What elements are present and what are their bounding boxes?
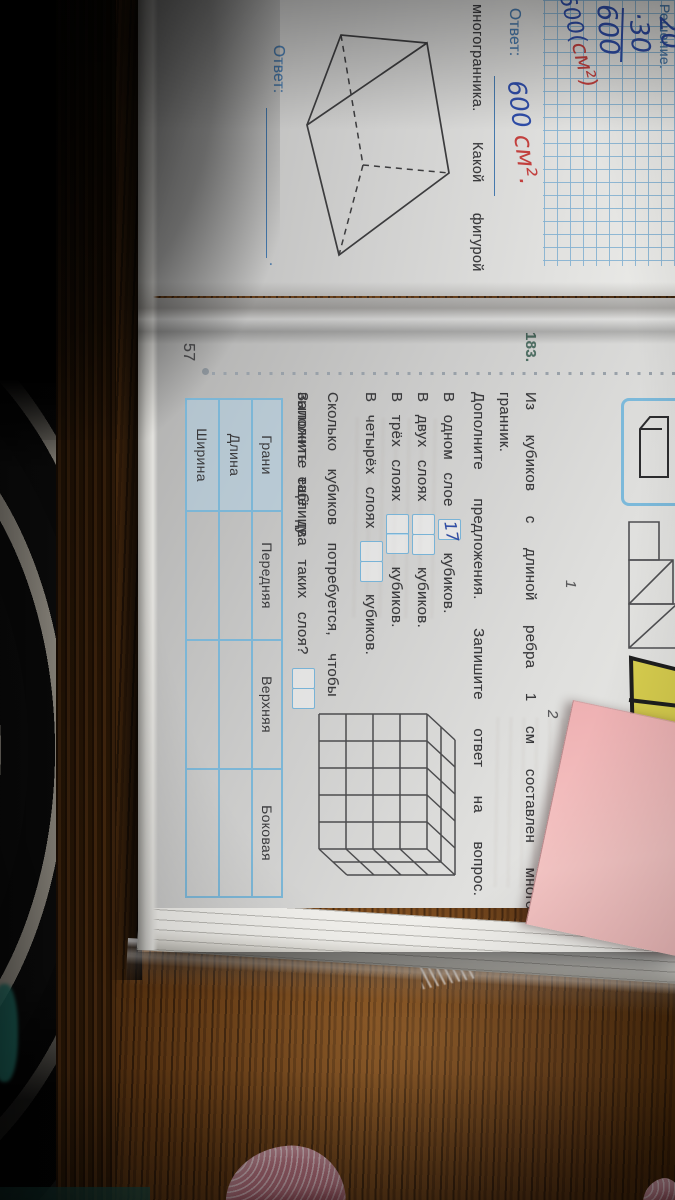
task-intro-line1: Из кубиков с длиной ребра 1 см составлен… <box>522 392 539 908</box>
book-side-shadow <box>108 0 142 980</box>
answer-underline-bottom <box>266 108 267 258</box>
answer-box-empty[interactable] <box>360 561 383 582</box>
answer-box-empty[interactable] <box>292 688 315 709</box>
page-number: 57 <box>179 343 197 361</box>
handwritten-factor-1: 20 <box>653 15 675 51</box>
answer-box-empty[interactable] <box>386 533 409 554</box>
table-corner-header: Грани <box>252 399 282 511</box>
table-col-header: Боковая <box>252 769 282 897</box>
pink-slipper-toe-corner <box>637 1174 675 1200</box>
task-intro-line2: гранник. <box>496 392 513 908</box>
photo-scene: Решение. 20 ·30 600 600(см²) Ответ: 600 … <box>0 0 675 1200</box>
answer-box-empty[interactable] <box>386 514 409 535</box>
answer-underline-top <box>494 76 495 196</box>
previous-task-box-sketch <box>628 405 670 499</box>
handwritten-answer: 600 см². <box>501 79 544 187</box>
pink-slipper-toe <box>222 1142 346 1200</box>
table-caption: Заполните таблицу. <box>294 392 311 538</box>
page-left: Решение. 20 ·30 600 600(см²) Ответ: 600 … <box>138 0 675 296</box>
answer-box-empty[interactable] <box>360 541 383 562</box>
question-line1: Сколько кубиков потребуется, чтобы <box>324 392 341 712</box>
answer-box-empty[interactable] <box>292 668 315 689</box>
figure2-label: 2 <box>544 710 561 719</box>
margin-dotted-rule <box>209 372 675 375</box>
table-cell-empty[interactable] <box>219 769 252 897</box>
table-row-label: Ширина <box>186 399 219 511</box>
table-cell-empty[interactable] <box>186 640 219 769</box>
task-text-fragment: многогранника. Какой фигурой <box>469 4 485 272</box>
answer-label-top: Ответ: <box>505 8 523 57</box>
answer-box-empty[interactable] <box>412 534 435 555</box>
table-edge-shadow <box>56 0 116 1050</box>
figure1-label: 1 <box>562 580 579 589</box>
cube-stack-figure <box>313 712 463 880</box>
table-cell-empty[interactable] <box>186 769 219 897</box>
answer-box-filled[interactable]: 17 <box>438 519 461 540</box>
prism-figure <box>279 25 459 265</box>
table-row-label: Длина <box>219 399 252 511</box>
answer-label-bottom: Ответ: <box>269 45 287 94</box>
table-cell-empty[interactable] <box>219 640 252 769</box>
book-spine-fold <box>138 282 675 344</box>
page-stack-edge <box>138 0 158 950</box>
table-col-header: Верхняя <box>252 640 282 769</box>
handwritten-factor-2: ·30 <box>623 11 656 54</box>
table-col-header: Передняя <box>252 511 282 640</box>
table-cell-empty[interactable] <box>219 511 252 640</box>
net-figure <box>609 518 675 652</box>
table-cell-empty[interactable] <box>186 511 219 640</box>
answer-period-bottom: . <box>266 262 283 266</box>
faces-table: Грани Передняя Верхняя Боковая Длина Шир… <box>185 398 283 898</box>
teal-bottom-strip <box>0 1187 150 1200</box>
answer-box-empty[interactable] <box>412 514 435 535</box>
previous-task-frame <box>621 398 675 506</box>
margin-rule-end-dot <box>202 368 209 375</box>
handwritten-result: 600 <box>590 3 625 57</box>
task-intro-line3: Дополните предложения. Запишите ответ на… <box>470 392 487 908</box>
